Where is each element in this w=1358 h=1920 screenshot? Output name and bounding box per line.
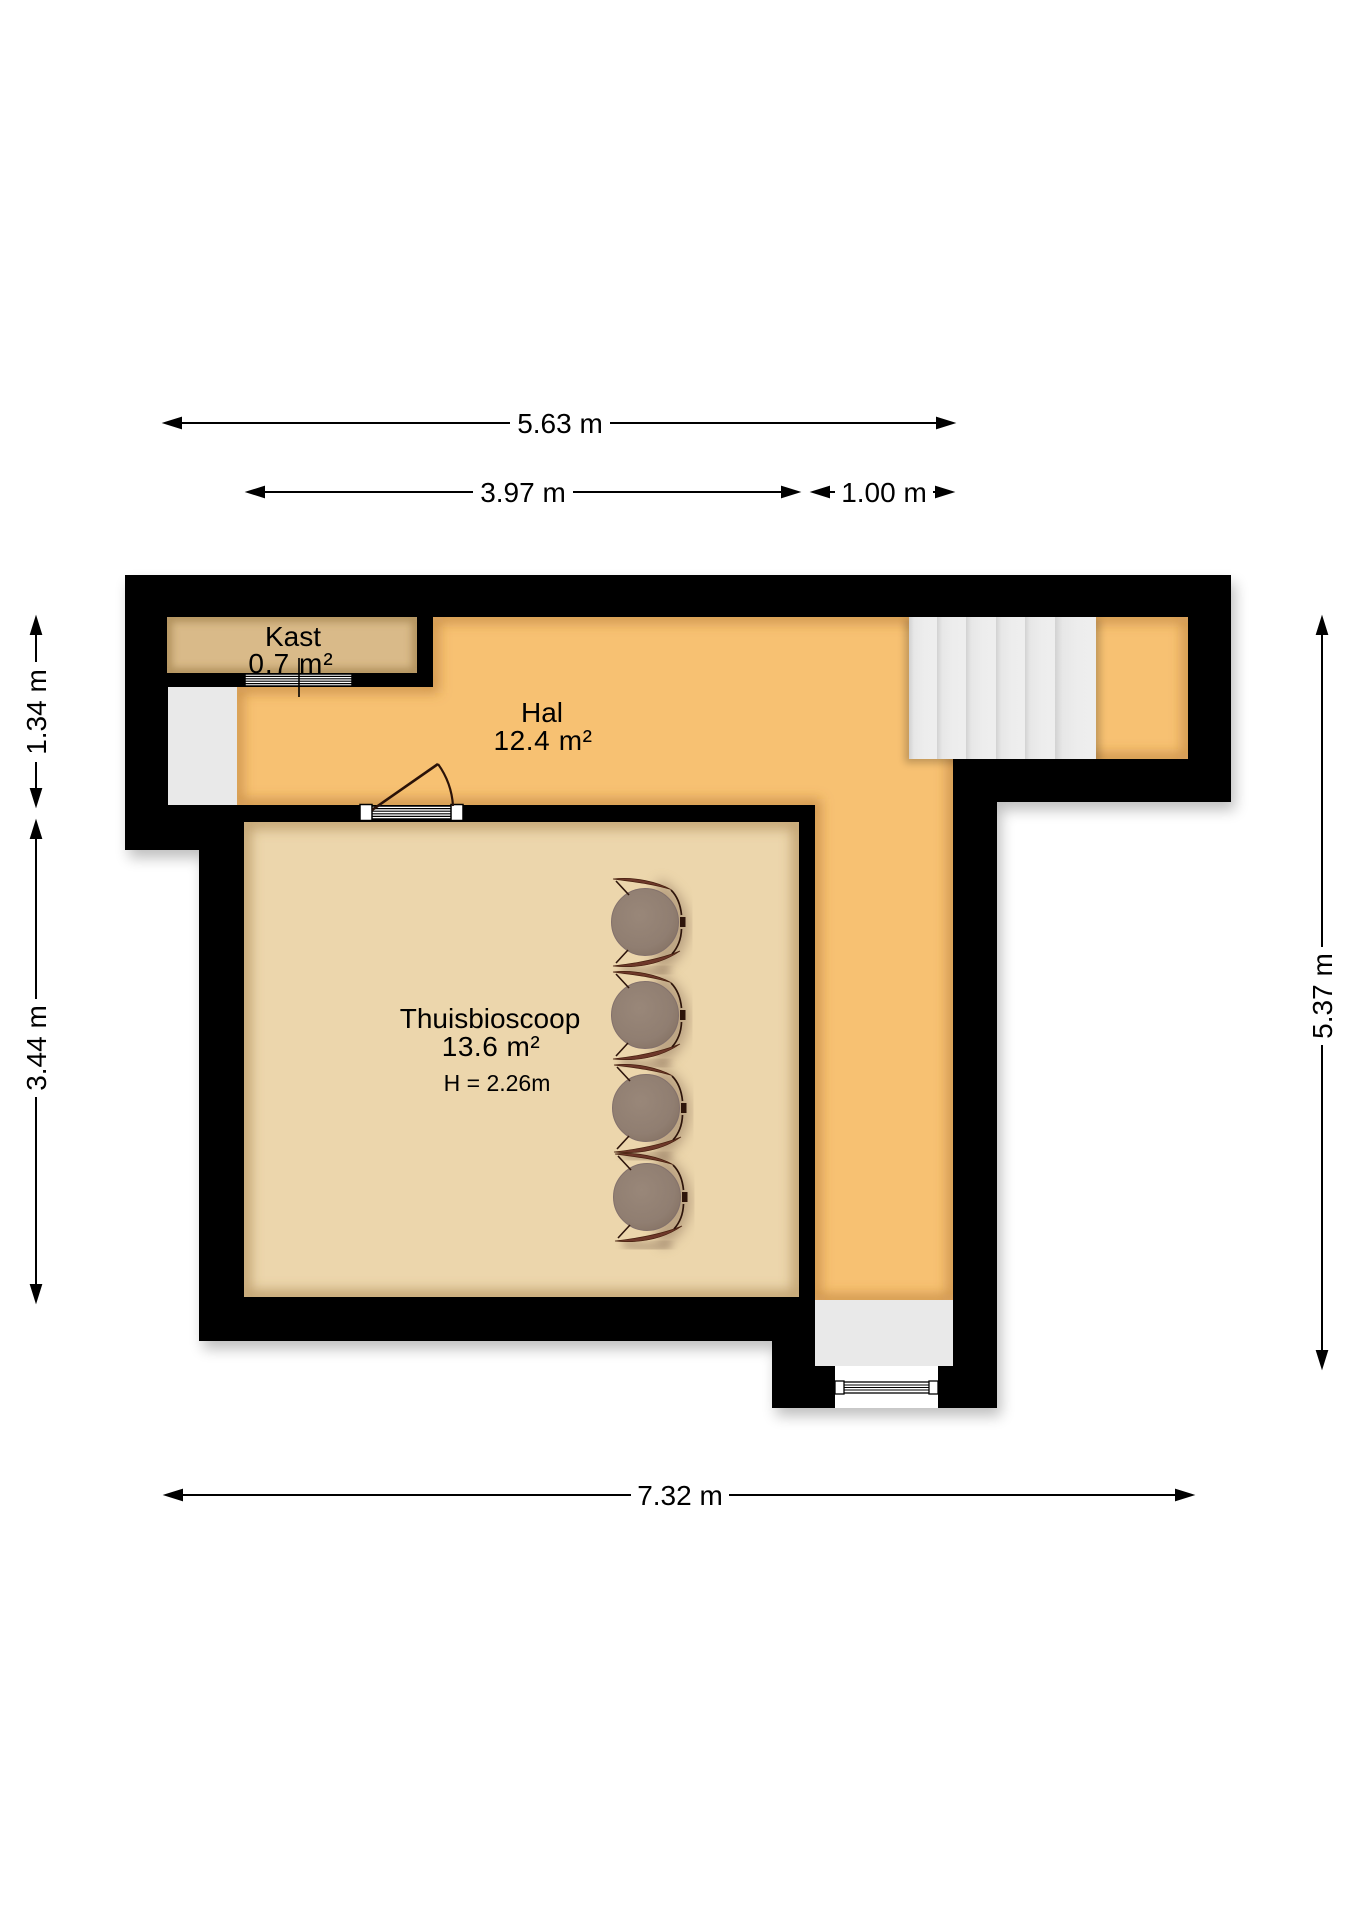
svg-text:3.44 m: 3.44 m bbox=[21, 1005, 52, 1091]
svg-text:12.4 m²: 12.4 m² bbox=[493, 725, 592, 756]
svg-text:0.7 m²: 0.7 m² bbox=[248, 648, 333, 679]
svg-text:13.6 m²: 13.6 m² bbox=[442, 1031, 540, 1062]
svg-text:Thuisbioscoop: Thuisbioscoop bbox=[400, 1003, 581, 1034]
svg-text:5.37 m: 5.37 m bbox=[1307, 953, 1338, 1039]
svg-text:1.00 m: 1.00 m bbox=[841, 477, 927, 508]
svg-text:5.63 m: 5.63 m bbox=[517, 408, 603, 439]
svg-text:3.97 m: 3.97 m bbox=[480, 477, 566, 508]
svg-text:1.34 m: 1.34 m bbox=[21, 669, 52, 755]
svg-text:H = 2.26m: H = 2.26m bbox=[444, 1070, 551, 1096]
svg-text:7.32 m: 7.32 m bbox=[637, 1480, 723, 1511]
svg-text:Hal: Hal bbox=[521, 697, 563, 728]
